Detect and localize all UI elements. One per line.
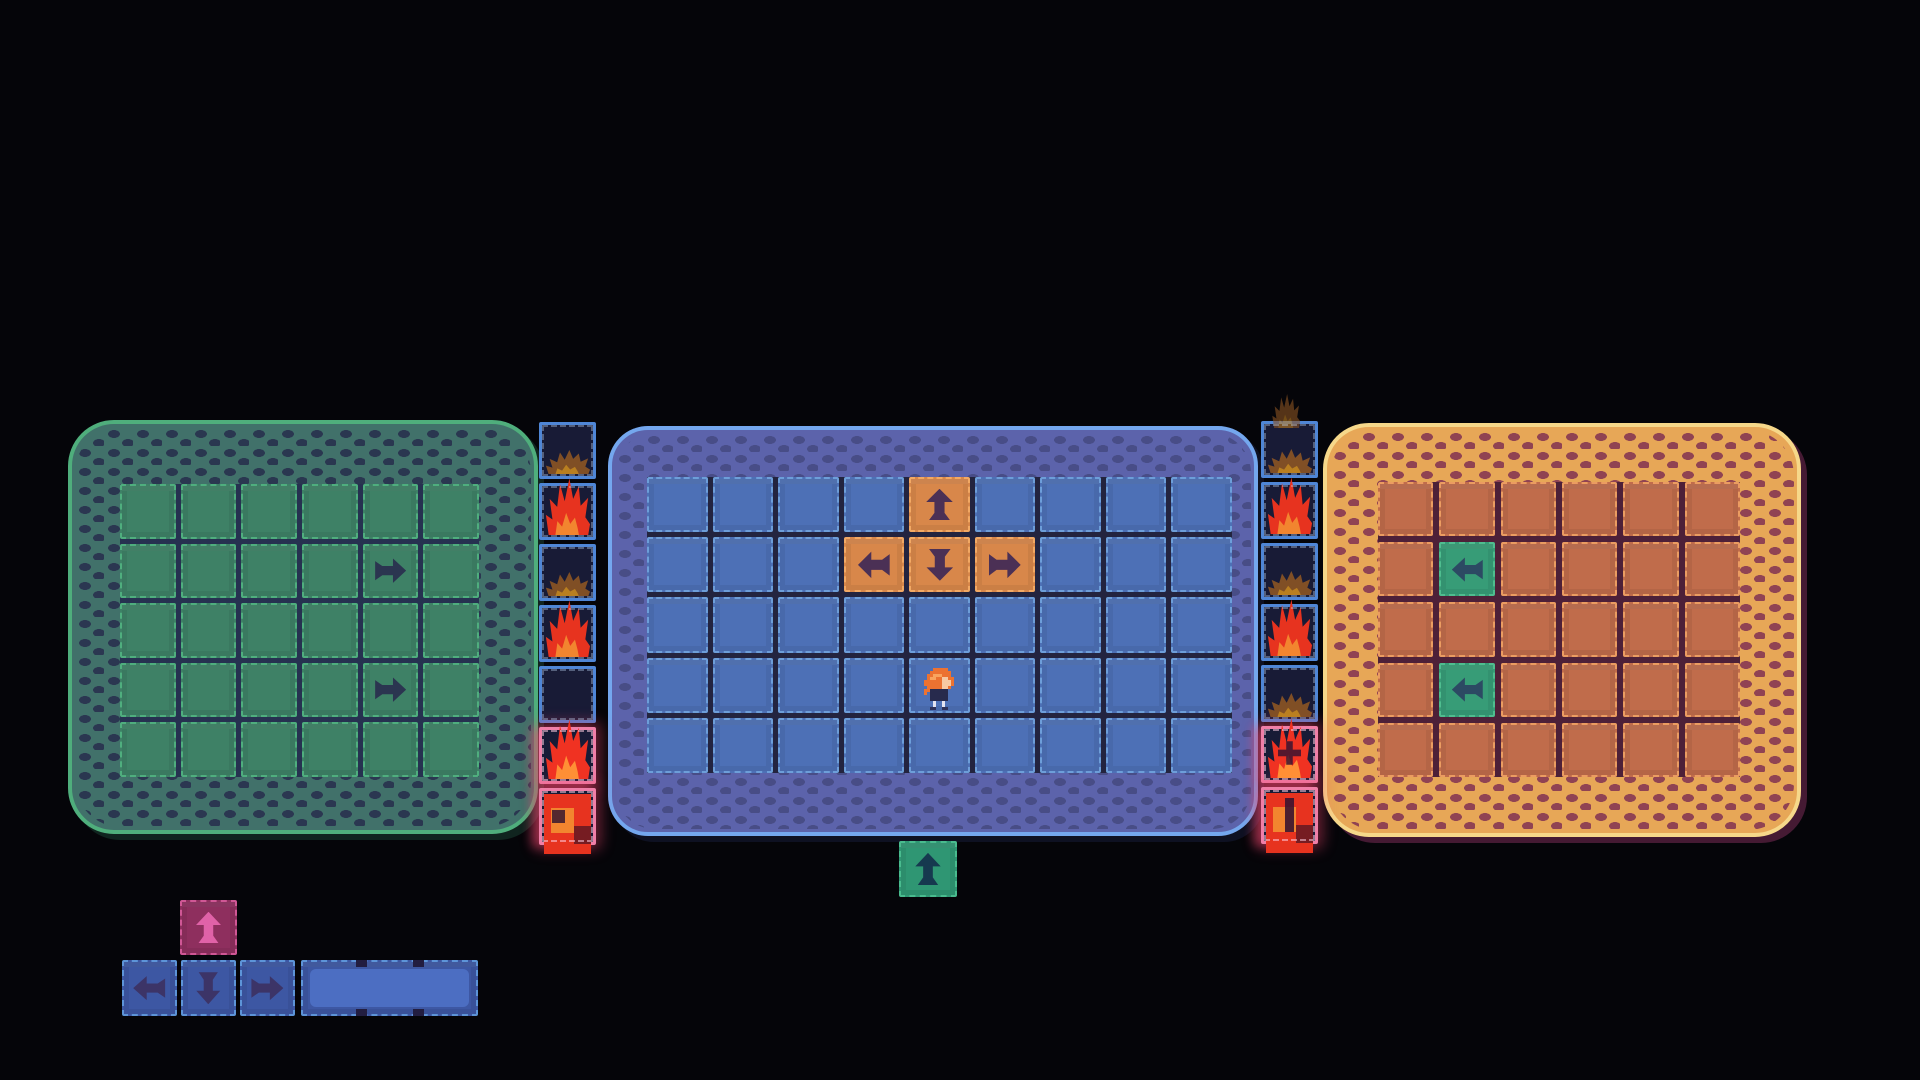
floor-tile <box>363 484 419 539</box>
arrow-tile-right[interactable] <box>363 544 419 599</box>
floor-tile <box>1562 542 1617 596</box>
floor-tile <box>181 544 237 599</box>
fire-tile <box>539 788 596 845</box>
floor-tile <box>302 722 358 777</box>
arrow-tile-left[interactable] <box>1439 542 1494 596</box>
flame-icon <box>544 450 591 474</box>
floor-tile <box>1685 542 1740 596</box>
floor-tile <box>844 597 905 652</box>
fire-tile <box>1261 665 1318 722</box>
player-sprite-icon <box>921 668 957 710</box>
fire-tile <box>539 422 596 479</box>
floor-tile <box>778 658 839 713</box>
floor-tile <box>1171 597 1232 652</box>
floor-tile <box>120 722 176 777</box>
fire-tile <box>1261 543 1318 600</box>
flame-icon <box>544 478 591 535</box>
control-arrow-down[interactable] <box>181 960 236 1016</box>
floor-tile <box>302 603 358 658</box>
tile-grid <box>1378 482 1740 777</box>
floor-tile <box>1501 663 1556 717</box>
floor-tile <box>1040 537 1101 592</box>
room-blue <box>608 426 1258 836</box>
floor-tile <box>181 484 237 539</box>
arrow-tile-right[interactable] <box>975 537 1036 592</box>
floor-tile <box>1623 723 1678 777</box>
floor-tile <box>1439 723 1494 777</box>
fire-strip-right <box>1261 421 1318 848</box>
floor-tile <box>909 658 970 713</box>
fire-tile <box>1261 482 1318 539</box>
floor-tile <box>778 477 839 532</box>
floor-tile <box>363 603 419 658</box>
room-floor <box>1378 482 1740 777</box>
fire-tile <box>539 727 596 784</box>
fire-tile <box>539 483 596 540</box>
fire-tile <box>1261 726 1318 783</box>
slot-notch <box>413 960 424 967</box>
arrow-tile-left[interactable] <box>1439 663 1494 717</box>
floor-tile <box>120 603 176 658</box>
floor-tile <box>1040 718 1101 773</box>
floor-tile <box>1106 537 1167 592</box>
flame-icon <box>1271 394 1301 428</box>
flame-icon <box>1266 599 1313 656</box>
floor-tile <box>1040 658 1101 713</box>
slot-notch <box>413 1009 424 1016</box>
arrow-tile-right[interactable] <box>363 663 419 718</box>
game-stage <box>0 0 1920 1080</box>
tile-grid <box>647 477 1232 773</box>
burnt-mark <box>552 810 565 823</box>
floor-tile <box>241 663 297 718</box>
floor-tile <box>1562 663 1617 717</box>
floor-tile <box>423 722 479 777</box>
floor-tile <box>1685 482 1740 536</box>
flame-icon <box>1266 477 1313 534</box>
floor-tile <box>1171 718 1232 773</box>
floor-tile <box>423 484 479 539</box>
floor-tile <box>1623 482 1678 536</box>
fire-tile <box>1261 421 1318 478</box>
arrow-down-icon <box>924 549 956 581</box>
floor-tile <box>423 603 479 658</box>
fire-tile <box>1261 787 1318 844</box>
room-floor <box>647 477 1232 773</box>
floor-tile <box>975 477 1036 532</box>
fire-tile <box>539 666 596 723</box>
floor-tile <box>778 718 839 773</box>
arrow-left-icon <box>1451 675 1482 704</box>
floor-tile <box>1106 658 1167 713</box>
floor-tile <box>1378 723 1433 777</box>
floor-tile <box>909 597 970 652</box>
flame-icon <box>1266 693 1313 717</box>
floor-tile <box>647 718 708 773</box>
floor-tile <box>1562 723 1617 777</box>
floor-tile <box>844 477 905 532</box>
floor-tile <box>1106 597 1167 652</box>
floor-tile <box>241 722 297 777</box>
floor-tile <box>647 477 708 532</box>
floor-tile <box>1501 602 1556 656</box>
floor-tile <box>647 537 708 592</box>
floor-tile <box>1501 482 1556 536</box>
floor-tile <box>363 722 419 777</box>
floor-tile <box>1378 482 1433 536</box>
fire-tile <box>539 605 596 662</box>
floor-tile <box>713 658 774 713</box>
floor-tile <box>1623 542 1678 596</box>
floor-tile <box>1171 537 1232 592</box>
flame-icon <box>544 600 591 657</box>
floor-tile <box>1439 602 1494 656</box>
arrow-right-icon <box>251 974 283 1003</box>
arrow-tile-left[interactable] <box>844 537 905 592</box>
floor-tile <box>1685 723 1740 777</box>
flame-icon <box>544 572 591 596</box>
slot-notch <box>356 960 367 967</box>
tile-grid <box>120 484 479 777</box>
burnt-mark <box>1285 798 1294 832</box>
floor-tile <box>1106 477 1167 532</box>
floor-tile <box>1106 718 1167 773</box>
floor-tile <box>423 544 479 599</box>
exit-arrow-tile[interactable] <box>899 841 957 897</box>
arrow-down-icon <box>194 972 223 1004</box>
control-arrow-left[interactable] <box>122 960 177 1016</box>
floor-tile <box>1562 602 1617 656</box>
control-slot[interactable] <box>301 960 478 1016</box>
arrow-up-icon <box>924 489 956 521</box>
floor-tile <box>181 722 237 777</box>
floor-tile <box>181 603 237 658</box>
arrow-tile-up[interactable] <box>909 477 970 532</box>
floor-tile <box>302 663 358 718</box>
floor-tile <box>1685 602 1740 656</box>
floor-tile <box>1501 542 1556 596</box>
floor-tile <box>1040 477 1101 532</box>
arrow-right-icon <box>375 556 406 585</box>
arrow-left-icon <box>858 549 890 581</box>
flame-icon <box>1266 571 1313 595</box>
floor-tile <box>713 477 774 532</box>
floor-tile <box>975 597 1036 652</box>
player-character <box>921 668 957 710</box>
room-floor <box>120 484 479 777</box>
floor-tile <box>1439 482 1494 536</box>
control-arrow-up[interactable] <box>180 900 237 955</box>
arrow-up-icon <box>913 853 943 885</box>
floor-tile <box>1378 542 1433 596</box>
flame-icon <box>544 719 591 779</box>
flame-icon <box>544 794 591 854</box>
floor-tile <box>120 663 176 718</box>
arrow-tile-down[interactable] <box>909 537 970 592</box>
floor-tile <box>647 658 708 713</box>
floor-tile <box>1378 602 1433 656</box>
floor-tile <box>302 484 358 539</box>
flame-icon <box>1266 449 1313 473</box>
slot-notch <box>356 1009 367 1016</box>
room-orange <box>1323 423 1801 837</box>
fire-tile <box>1261 604 1318 661</box>
fire-strip-left <box>539 422 596 849</box>
floor-tile <box>241 603 297 658</box>
arrow-right-icon <box>375 676 406 705</box>
floor-tile <box>1378 663 1433 717</box>
floor-tile <box>302 544 358 599</box>
arrow-up-icon <box>194 912 224 944</box>
floor-tile <box>975 718 1036 773</box>
floor-tile <box>909 718 970 773</box>
floor-tile <box>713 718 774 773</box>
floor-tile <box>1623 663 1678 717</box>
room-green <box>68 420 538 834</box>
slot-inner-plate <box>310 969 469 1007</box>
floor-tile <box>778 597 839 652</box>
fire-tile <box>539 544 596 601</box>
floor-tile <box>423 663 479 718</box>
floor-tile <box>647 597 708 652</box>
arrow-right-icon <box>989 549 1021 581</box>
floor-tile <box>713 537 774 592</box>
control-arrow-right[interactable] <box>240 960 295 1016</box>
floor-tile <box>181 663 237 718</box>
floor-tile <box>120 484 176 539</box>
floor-tile <box>975 658 1036 713</box>
floor-tile <box>844 718 905 773</box>
floor-tile <box>1171 477 1232 532</box>
arrow-left-icon <box>1451 555 1482 584</box>
floor-tile <box>1501 723 1556 777</box>
floor-tile <box>1562 482 1617 536</box>
floor-tile <box>120 544 176 599</box>
floor-tile <box>1623 602 1678 656</box>
floor-tile <box>713 597 774 652</box>
floor-tile <box>241 544 297 599</box>
floor-tile <box>241 484 297 539</box>
floor-tile <box>844 658 905 713</box>
arrow-left-icon <box>133 974 165 1003</box>
floor-tile <box>1685 663 1740 717</box>
floor-tile <box>1040 597 1101 652</box>
floor-tile <box>778 537 839 592</box>
floor-tile <box>1171 658 1232 713</box>
